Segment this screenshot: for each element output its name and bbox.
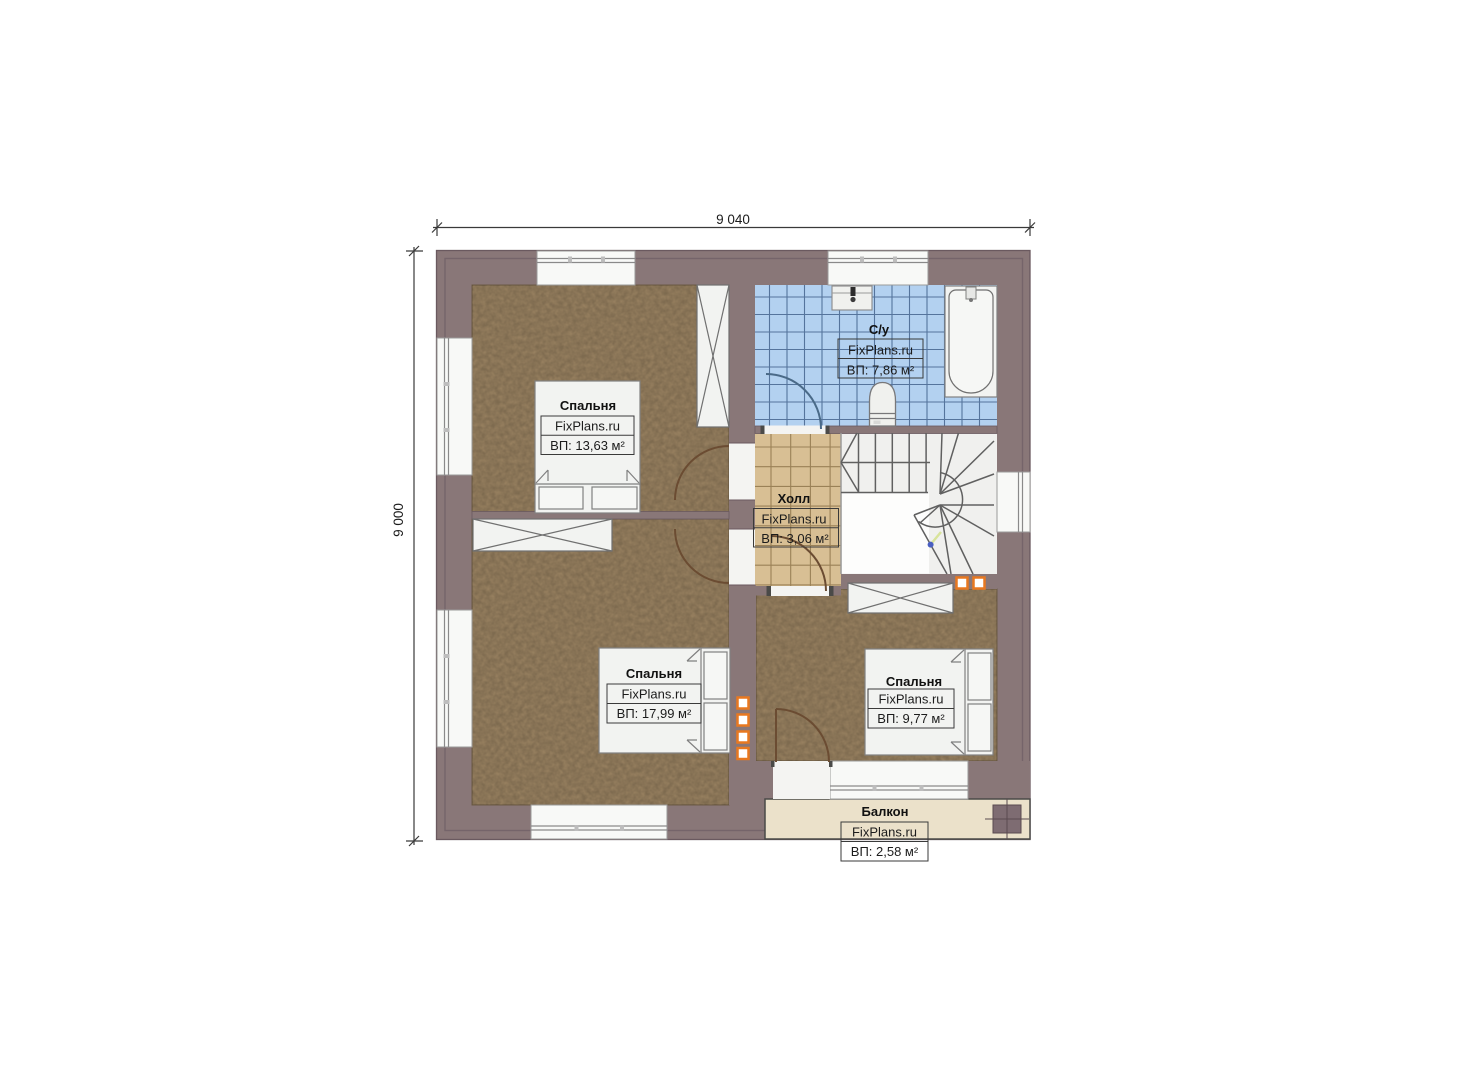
svg-text:ВП: 3,06 м²: ВП: 3,06 м² (761, 531, 829, 546)
svg-text:FixPlans.ru: FixPlans.ru (848, 343, 913, 358)
svg-text:9 040: 9 040 (716, 212, 750, 227)
svg-text:ВП: 7,86 м²: ВП: 7,86 м² (847, 362, 915, 377)
svg-text:FixPlans.ru: FixPlans.ru (878, 692, 943, 707)
svg-text:Спальня: Спальня (560, 398, 616, 413)
svg-text:Холл: Холл (778, 491, 811, 506)
svg-text:ВП: 13,63 м²: ВП: 13,63 м² (550, 438, 625, 453)
svg-text:FixPlans.ru: FixPlans.ru (761, 512, 826, 527)
svg-text:FixPlans.ru: FixPlans.ru (555, 419, 620, 434)
svg-text:Балкон: Балкон (862, 804, 909, 819)
svg-text:9 000: 9 000 (391, 503, 406, 537)
svg-text:Спальня: Спальня (626, 666, 682, 681)
svg-text:С/у: С/у (869, 322, 890, 337)
svg-text:ВП: 17,99 м²: ВП: 17,99 м² (617, 706, 692, 721)
svg-text:FixPlans.ru: FixPlans.ru (852, 825, 917, 840)
svg-text:FixPlans.ru: FixPlans.ru (621, 687, 686, 702)
svg-text:ВП: 9,77 м²: ВП: 9,77 м² (877, 711, 945, 726)
svg-text:ВП: 2,58 м²: ВП: 2,58 м² (851, 844, 919, 859)
svg-text:Спальня: Спальня (886, 674, 942, 689)
